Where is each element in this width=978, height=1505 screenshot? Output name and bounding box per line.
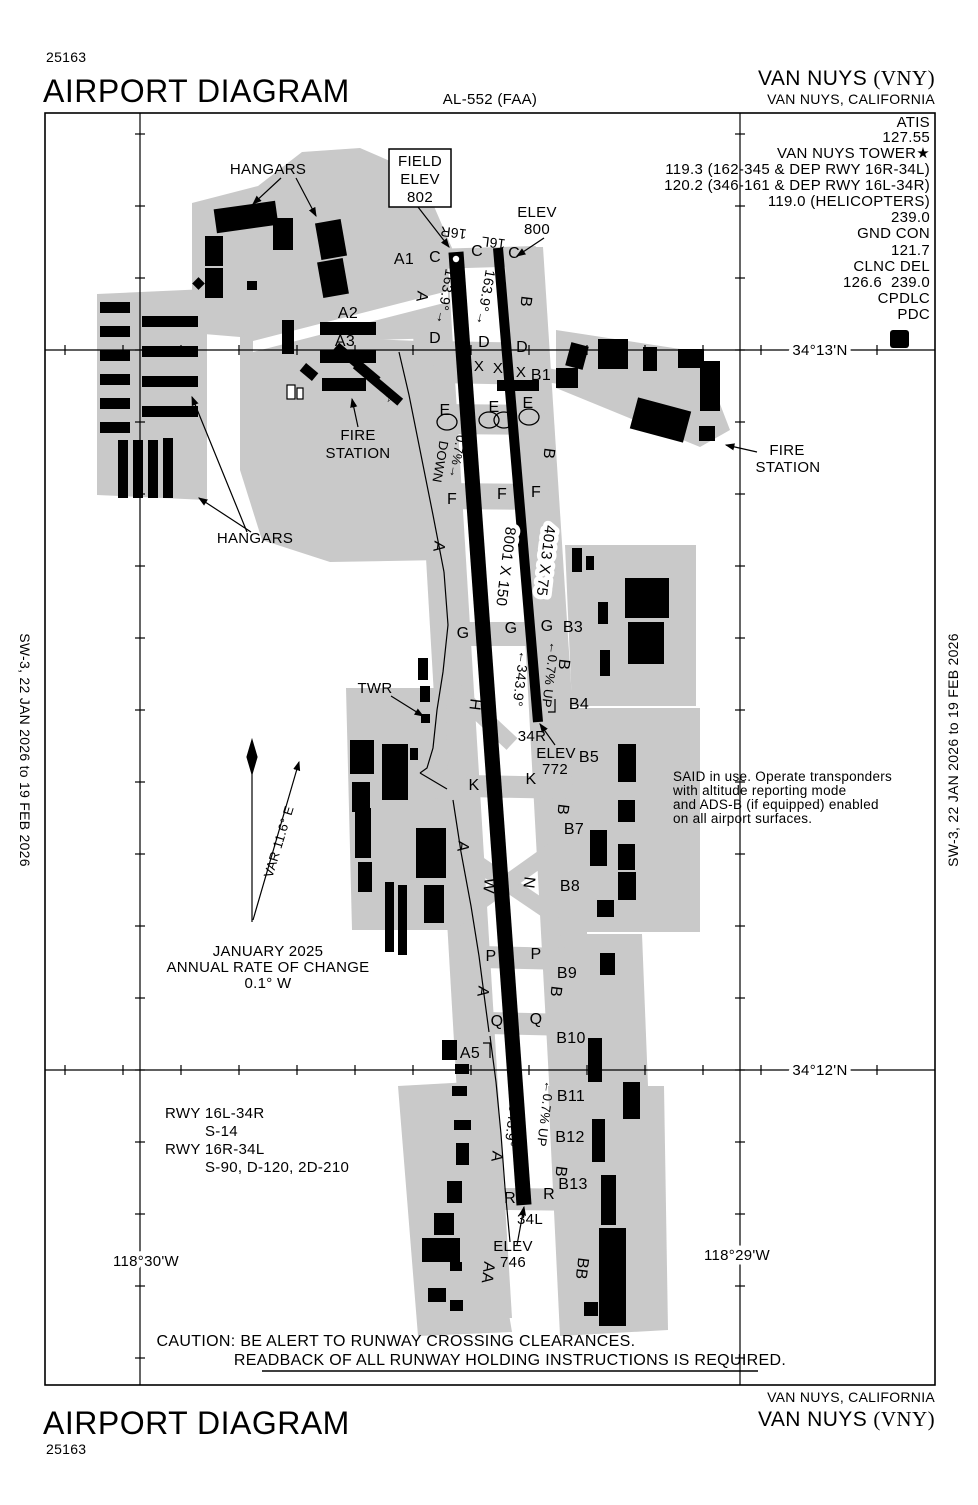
- map-label: X: [474, 358, 484, 375]
- map-label: BB: [572, 1257, 592, 1281]
- building: [247, 281, 257, 290]
- airport-name-bottom: VAN NUYS (VNY): [758, 1407, 935, 1431]
- fire-station-label-east: STATION: [756, 459, 821, 476]
- map-label: W: [479, 877, 498, 895]
- field-elev-box-text: 802: [407, 189, 433, 206]
- building: [600, 953, 615, 975]
- map-label: B12: [555, 1129, 584, 1146]
- building: [586, 556, 594, 570]
- map-label: H: [465, 698, 483, 712]
- map-label: P: [486, 948, 497, 965]
- building: [282, 320, 294, 354]
- rwy-end-16l: 16L: [480, 234, 506, 253]
- map-label: B11: [557, 1088, 585, 1105]
- map-label: D: [429, 330, 441, 347]
- map-label: AA: [478, 1261, 498, 1285]
- airport-diagram-page: D 34°13'N34°12'N118°30'W118°29'WFIELDELE…: [0, 0, 978, 1500]
- comm-line: 239.0: [891, 209, 930, 226]
- north-arrow: [247, 740, 299, 922]
- building: [643, 347, 657, 371]
- building: [100, 422, 130, 433]
- map-label: G: [505, 620, 518, 637]
- building: [625, 578, 669, 618]
- fire-station-star-icon: ☆: [385, 389, 398, 405]
- map-label: G: [541, 618, 554, 635]
- building: [572, 548, 582, 572]
- building: [598, 339, 628, 369]
- building: [597, 900, 614, 917]
- variation-note: 0.1° W: [245, 975, 293, 992]
- map-label: B10: [556, 1030, 585, 1047]
- airport-city-top: VAN NUYS, CALIFORNIA: [767, 91, 935, 107]
- map-label: A3: [335, 333, 355, 350]
- map-label: E: [489, 399, 500, 416]
- airport-name-top: VAN NUYS (VNY): [758, 66, 935, 90]
- margin-effective-dates-left: SW-3, 22 JAN 2026 to 19 FEB 2026: [17, 633, 33, 867]
- building: [273, 218, 293, 250]
- building: [699, 426, 715, 441]
- rwy-end-34l: 34L: [517, 1211, 543, 1228]
- building: [352, 782, 370, 812]
- building: [592, 1119, 605, 1162]
- fire-station-label-east: FIRE: [769, 442, 804, 459]
- map-label: Q: [530, 1011, 543, 1028]
- building: [450, 1262, 462, 1271]
- building: [418, 658, 428, 680]
- page-title-top: AIRPORT DIAGRAM: [43, 73, 350, 109]
- hot-spot-d-symbol: D: [895, 332, 905, 347]
- building: [452, 1086, 467, 1096]
- map-label: C: [471, 243, 483, 260]
- lon-label-left: 118°30'W: [113, 1253, 180, 1270]
- building: [434, 1213, 454, 1235]
- airport-code-bottom: (VNY): [873, 1407, 935, 1431]
- comm-line: CPDLC: [878, 290, 930, 307]
- building: [447, 1181, 462, 1203]
- building: [601, 1175, 616, 1225]
- caution-note: CAUTION: BE ALERT TO RUNWAY CROSSING CLE…: [157, 1333, 636, 1350]
- field-elev-box-text: FIELD: [398, 153, 442, 170]
- rwy-data: S-14: [205, 1123, 238, 1140]
- comm-line: GND CON: [857, 225, 930, 242]
- building: [355, 808, 371, 858]
- building: [142, 406, 198, 417]
- map-label: A2: [338, 305, 358, 322]
- map-label: Q: [491, 1013, 504, 1030]
- comm-line: PDC: [897, 306, 930, 323]
- map-label: A: [487, 1150, 505, 1163]
- building: [416, 828, 446, 878]
- comm-line: 121.7: [891, 242, 930, 259]
- building: [118, 440, 128, 498]
- comm-line: CLNC DEL: [853, 258, 930, 275]
- hangars-label-north: HANGARS: [230, 161, 306, 178]
- map-label: A: [429, 540, 447, 553]
- map-label: B13: [558, 1176, 587, 1193]
- said-note: on all airport surfaces.: [673, 811, 812, 826]
- map-label: N: [519, 876, 537, 890]
- map-label: X: [516, 364, 526, 381]
- building: [100, 398, 130, 409]
- map-label: F: [447, 491, 457, 508]
- map-label: A: [453, 840, 471, 853]
- building: [590, 830, 607, 866]
- rwy-heading-16l: 163.9°→: [473, 269, 499, 328]
- map-label: B7: [564, 821, 584, 838]
- building: [422, 1238, 460, 1262]
- map-label: F: [531, 484, 541, 501]
- building: [700, 361, 720, 411]
- building: [100, 326, 130, 337]
- comm-line: 120.2 (346-161 & DEP RWY 16L-34R): [664, 177, 930, 194]
- map-label: B: [516, 295, 534, 308]
- map-label: B9: [557, 965, 577, 982]
- map-label: B: [546, 985, 564, 998]
- lon-label-right: 118°29'W: [704, 1247, 771, 1264]
- building: [322, 378, 366, 391]
- building: [100, 350, 130, 361]
- building: [142, 316, 198, 327]
- map-label: B3: [563, 619, 583, 636]
- map-label: G: [457, 625, 470, 642]
- caution-note: READBACK OF ALL RUNWAY HOLDING INSTRUCTI…: [234, 1352, 786, 1369]
- chart-number-top: 25163: [46, 49, 86, 65]
- building: [205, 236, 223, 266]
- magnetic-variation: VAR 11.6° E: [261, 804, 297, 879]
- building: [385, 882, 394, 952]
- airport-city-bottom: VAN NUYS, CALIFORNIA: [767, 1389, 935, 1405]
- map-label: P: [531, 946, 542, 963]
- building: [358, 862, 372, 892]
- map-label: B4: [569, 696, 589, 713]
- airport-code-top: (VNY): [873, 66, 935, 90]
- said-note: SAID in use. Operate transponders: [673, 769, 892, 784]
- comm-line: 126.6 239.0: [843, 274, 930, 291]
- elev-800: 800: [524, 221, 550, 238]
- map-label: A4: [388, 782, 408, 799]
- map-label: B8: [560, 878, 580, 895]
- building: [598, 602, 608, 624]
- fire-station-label-west: STATION: [326, 445, 391, 462]
- map-label: A1: [394, 251, 414, 268]
- building: [424, 885, 444, 923]
- building: [398, 885, 407, 955]
- building: [584, 1302, 598, 1316]
- elev-772: ELEV: [536, 745, 576, 762]
- map-label: X: [493, 360, 503, 377]
- map-label: R: [543, 1186, 555, 1203]
- building: [205, 268, 223, 298]
- runway-threshold-dot: [453, 256, 459, 262]
- building: [599, 1228, 626, 1326]
- al-number: AL-552 (FAA): [443, 91, 537, 108]
- variation-note: ANNUAL RATE OF CHANGE: [167, 959, 370, 976]
- building: [133, 440, 143, 498]
- said-note: and ADS-B (if equipped) enabled: [673, 797, 879, 812]
- variation-note: JANUARY 2025: [213, 943, 324, 960]
- map-label: B: [539, 447, 557, 460]
- building: [428, 1288, 446, 1302]
- building: [618, 844, 635, 870]
- map-label: B: [553, 803, 571, 816]
- elev-800: ELEV: [517, 204, 557, 221]
- chart-number-bottom: 25163: [46, 1441, 86, 1457]
- comm-line: 119.0 (HELICOPTERS): [768, 193, 930, 210]
- building: [450, 1300, 463, 1311]
- page-title-bottom: AIRPORT DIAGRAM: [43, 1405, 350, 1441]
- map-label: C: [508, 245, 520, 262]
- map-label: A5: [460, 1045, 480, 1062]
- fire-station-label-west: FIRE: [340, 427, 375, 444]
- building: [618, 872, 636, 900]
- building: [163, 438, 173, 498]
- elev-772: 772: [542, 761, 568, 778]
- building: [618, 800, 635, 822]
- lat-label-top: 34°13'N: [792, 342, 847, 359]
- map-label: D: [478, 334, 490, 351]
- building: [420, 686, 430, 702]
- building: [455, 1064, 469, 1074]
- comm-line: VAN NUYS TOWER★: [777, 145, 930, 162]
- rwy-data: S-90, D-120, 2D-210: [205, 1159, 349, 1176]
- rwy-end-16r: 16R: [439, 223, 467, 242]
- map-label: B5: [579, 749, 599, 766]
- building: [142, 376, 198, 387]
- elev-746: ELEV: [493, 1238, 533, 1255]
- elev-746: 746: [500, 1254, 526, 1271]
- map-label: A: [412, 290, 430, 303]
- building: [442, 1040, 457, 1060]
- margin-effective-dates-right: SW-3, 22 JAN 2026 to 19 FEB 2026: [945, 633, 961, 867]
- map-label: E: [523, 395, 534, 412]
- said-note: with altitude reporting mode: [672, 783, 846, 798]
- comm-line: 127.55: [882, 129, 930, 146]
- building: [588, 1038, 602, 1082]
- airport-diagram-canvas: D 34°13'N34°12'N118°30'W118°29'WFIELDELE…: [0, 0, 978, 1500]
- building: [410, 748, 418, 760]
- comm-line: 119.3 (162-345 & DEP RWY 16R-34L): [665, 161, 930, 178]
- map-label: E: [440, 402, 451, 419]
- rwy-dimensions-16r-34l: 8001 X 150: [492, 526, 519, 607]
- lat-label-bottom: 34°12'N: [792, 1062, 847, 1079]
- map-label: F: [497, 486, 507, 503]
- rwy-data: RWY 16L-34R: [165, 1105, 264, 1122]
- building: [456, 1143, 469, 1165]
- map-label: K: [526, 771, 537, 788]
- building: [623, 1082, 640, 1119]
- map-label: B1: [531, 367, 551, 384]
- building: [600, 650, 610, 676]
- building: [556, 368, 578, 388]
- building: [148, 440, 158, 498]
- building: [350, 740, 374, 774]
- rwy-end-34r: 34R: [518, 728, 546, 745]
- map-label: C: [429, 249, 441, 266]
- building: [100, 374, 130, 385]
- building: [454, 1120, 471, 1130]
- comm-frequency-block: ATIS127.55VAN NUYS TOWER★119.3 (162-345 …: [664, 114, 930, 323]
- tower-label: TWR: [357, 680, 392, 697]
- building: [142, 346, 198, 357]
- hangars-label-west: HANGARS: [217, 530, 293, 547]
- rwy-data: RWY 16R-34L: [165, 1141, 264, 1158]
- map-label: R: [504, 1190, 516, 1207]
- map-label: A: [473, 985, 491, 998]
- map-label: K: [469, 777, 480, 794]
- building: [100, 302, 130, 313]
- building: [628, 622, 664, 664]
- building: [618, 744, 636, 782]
- map-label: D: [516, 339, 528, 356]
- field-elev-box-text: ELEV: [400, 171, 440, 188]
